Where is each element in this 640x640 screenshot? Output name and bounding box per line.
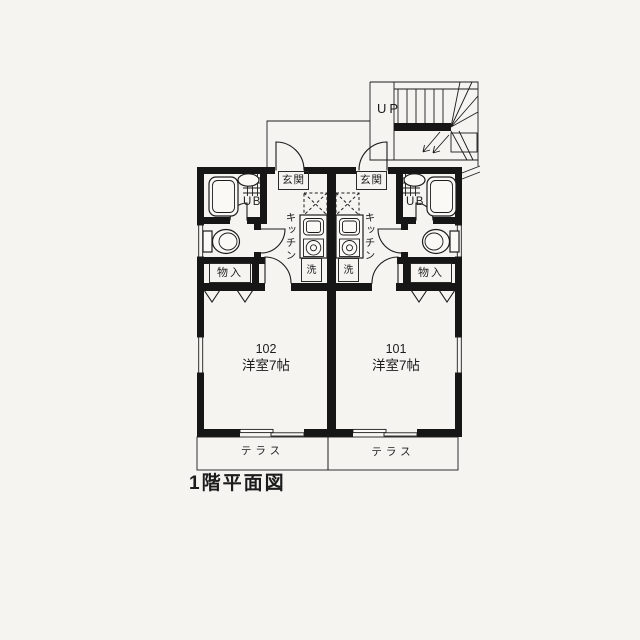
washer-label-101: 洗 xyxy=(338,258,359,282)
kitchen-label-102: キッチン xyxy=(284,212,296,270)
floor-plan-linework xyxy=(0,0,640,640)
refrigerator-space-101 xyxy=(336,193,359,215)
storage-label-102: 物入 xyxy=(209,263,251,283)
room-number-101: 101 xyxy=(341,342,451,357)
stairs xyxy=(267,82,480,179)
entrance-label-101: 玄関 xyxy=(356,171,387,190)
floor-plan: UP 玄関 玄関 UB UB キッチン キッチン 洗 洗 物入 物入 102 洋… xyxy=(0,0,640,640)
unit-bath-label-101: UB xyxy=(399,196,432,209)
room-label-101: 101 洋室7帖 xyxy=(341,342,451,375)
room-type-102: 洋室7帖 xyxy=(211,357,321,375)
room-number-102: 102 xyxy=(211,342,321,357)
floor-plan-caption: 1階平面図 xyxy=(189,474,286,495)
washer-label-102: 洗 xyxy=(301,258,322,282)
entrance-label-102: 玄関 xyxy=(278,171,309,190)
terrace-label-102: テラス xyxy=(197,446,328,458)
kitchen-label-101: キッチン xyxy=(363,212,375,270)
unit-bath-label-102: UB xyxy=(236,196,269,209)
refrigerator-space-102 xyxy=(304,193,327,215)
washbasin-101 xyxy=(404,174,425,186)
terrace-label-101: テラス xyxy=(328,447,458,459)
stairs-up-label: UP xyxy=(372,102,406,116)
room-label-102: 102 洋室7帖 xyxy=(211,342,321,375)
washbasin-102 xyxy=(238,174,259,186)
storage-label-101: 物入 xyxy=(410,263,452,283)
room-type-101: 洋室7帖 xyxy=(341,357,451,375)
